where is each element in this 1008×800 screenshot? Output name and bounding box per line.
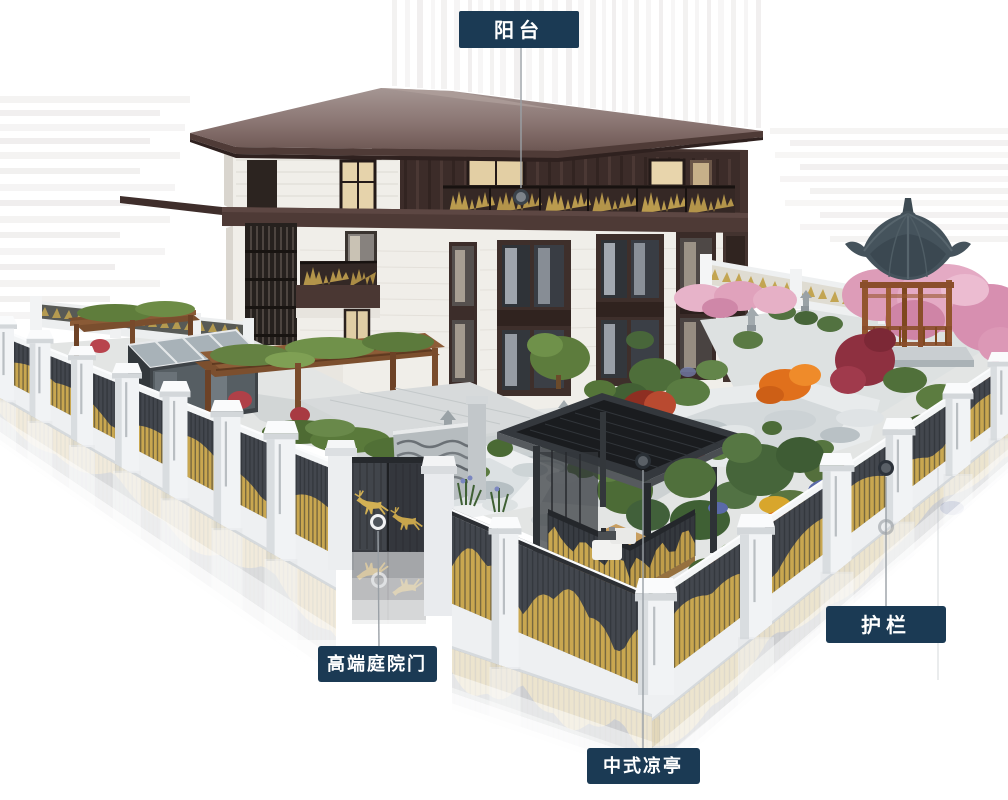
svg-text:中式凉亭: 中式凉亭: [603, 755, 683, 776]
svg-text:护栏: 护栏: [861, 613, 911, 637]
svg-text:阳台: 阳台: [494, 18, 544, 42]
svg-text:高端庭院门: 高端庭院门: [327, 653, 427, 674]
